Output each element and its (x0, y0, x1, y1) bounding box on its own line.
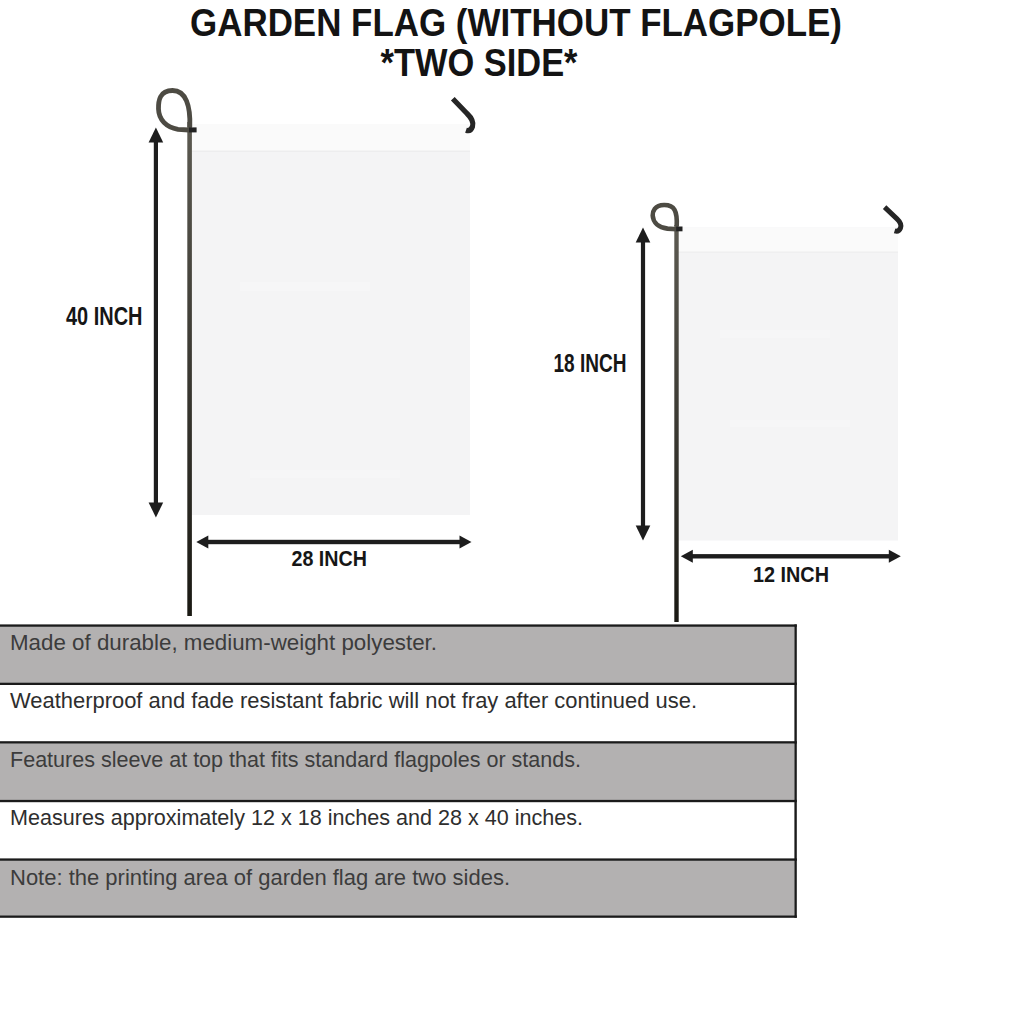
svg-text:Weatherproof and fade resistan: Weatherproof and fade resistant fabric w… (10, 687, 697, 713)
svg-text:*TWO SIDE*: *TWO SIDE* (381, 41, 579, 84)
svg-text:18 INCH: 18 INCH (554, 349, 627, 377)
svg-text:Note: the printing area of gar: Note: the printing area of garden flag a… (10, 864, 510, 890)
svg-text:Made of durable, medium-weight: Made of durable, medium-weight polyester… (10, 629, 437, 655)
svg-text:28 INCH: 28 INCH (292, 546, 368, 571)
svg-text:40 INCH: 40 INCH (66, 302, 143, 330)
svg-text:Measures approximately 12 x 18: Measures approximately 12 x 18 inches an… (10, 804, 583, 830)
svg-text:Features sleeve at top that fi: Features sleeve at top that fits standar… (10, 746, 581, 772)
svg-text:GARDEN FLAG (WITHOUT FLAGPOLE): GARDEN FLAG (WITHOUT FLAGPOLE) (190, 1, 842, 44)
svg-text:12 INCH: 12 INCH (753, 562, 829, 587)
